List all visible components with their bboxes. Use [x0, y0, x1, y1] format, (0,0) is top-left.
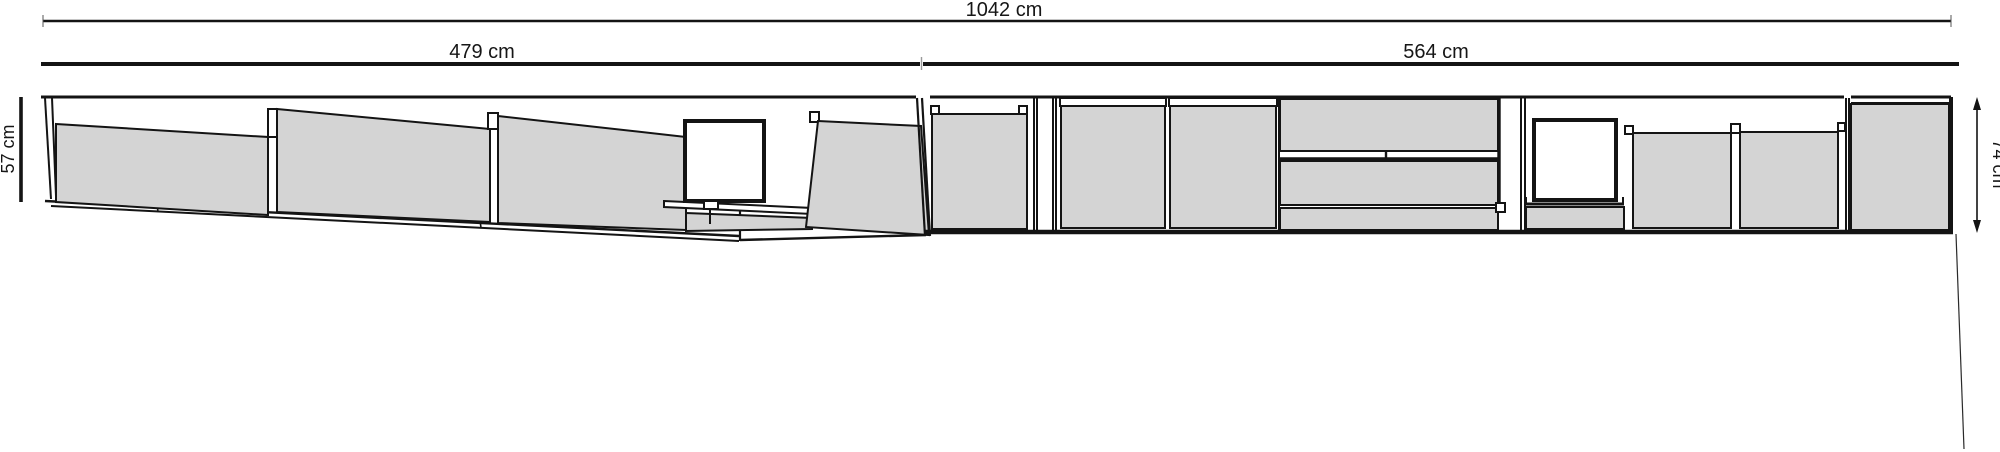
elevation-drawing-page: 1042 cm 479 cm 564 cm 57 cm 74 cm — [0, 0, 2000, 452]
flap-panel — [498, 116, 686, 230]
flap-edge-tab — [931, 106, 939, 114]
flap-panel — [277, 109, 490, 222]
flap-edge-tab — [1625, 126, 1633, 134]
arrow-down-icon — [1973, 220, 1981, 233]
flap-panel — [1633, 133, 1731, 228]
dimension-left-height: 57 cm — [0, 97, 21, 202]
divider-foot — [1496, 203, 1505, 212]
flap-panel — [1280, 99, 1498, 151]
door-panel — [1170, 106, 1276, 228]
flap-edge-tab — [1731, 124, 1740, 133]
right-wall-dimension-label: 564 cm — [1403, 41, 1469, 63]
door-top-rail — [1060, 98, 1166, 106]
flap-panel — [932, 114, 1027, 229]
flap-edge-tab — [1838, 123, 1845, 131]
end-panel — [1851, 104, 1949, 230]
dimension-right-wall-width: 564 cm — [922, 41, 1960, 70]
dimension-left-wall-width: 479 cm — [41, 41, 920, 64]
projection-leader-line — [1956, 234, 1964, 449]
flap-panel — [1740, 132, 1838, 228]
flap-edge-tab — [488, 113, 498, 129]
elevation-drawing: 1042 cm 479 cm 564 cm 57 cm 74 cm — [0, 0, 2000, 452]
flap-panel — [56, 124, 268, 215]
window-cutout-left — [685, 121, 764, 201]
door-panel — [1061, 106, 1165, 228]
left-height-dimension-label: 57 cm — [0, 124, 18, 173]
flap-unit-wide — [1279, 98, 1505, 230]
left-wall-elevation — [45, 98, 930, 241]
flap-panel — [1280, 161, 1498, 205]
window-cutout-right — [1534, 120, 1616, 200]
door-top-rail — [1169, 98, 1277, 106]
dimension-right-height: 74 cm — [1973, 97, 2000, 233]
right-wall-elevation — [924, 97, 1964, 449]
flap-edge-tab — [268, 109, 277, 137]
cutout-notch — [704, 201, 718, 209]
right-height-dimension-label: 74 cm — [1989, 139, 2000, 188]
flap-panel — [686, 213, 812, 231]
left-wall-dimension-label: 479 cm — [449, 41, 515, 63]
dimension-total-width: 1042 cm — [43, 0, 1951, 27]
flap-panel — [806, 121, 929, 235]
flap-panel — [1526, 207, 1624, 229]
arrow-up-icon — [1973, 97, 1981, 110]
total-width-dimension-label: 1042 cm — [966, 0, 1043, 21]
flap-panel — [1280, 208, 1498, 230]
flap-edge-tab — [1019, 106, 1027, 114]
